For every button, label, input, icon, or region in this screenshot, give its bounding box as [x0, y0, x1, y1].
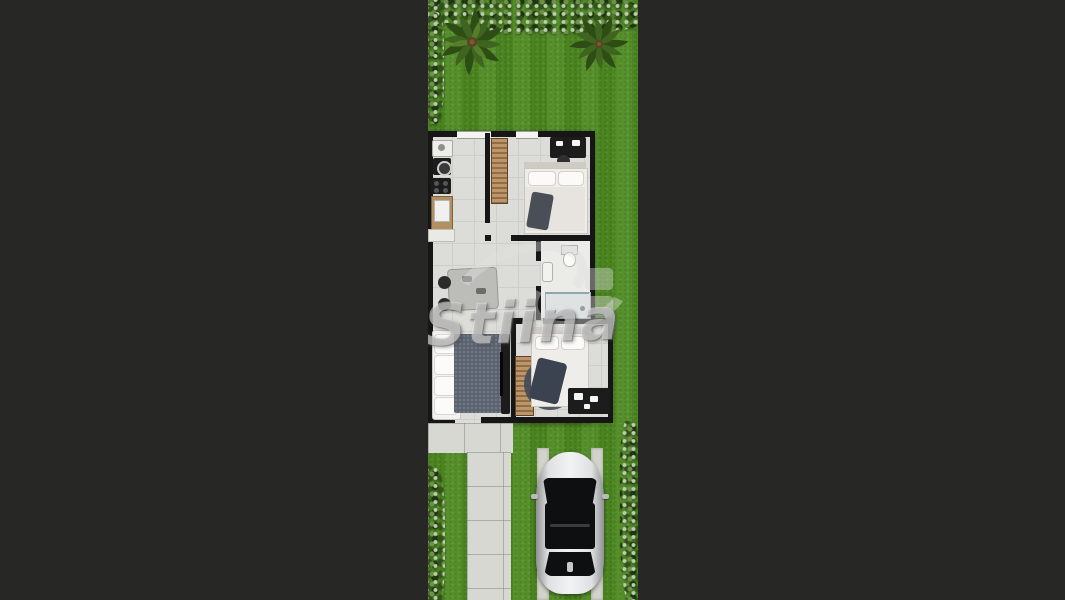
- washing-machine-door: [437, 161, 452, 176]
- bathroom-sink: [542, 262, 553, 282]
- burner-2: [443, 181, 448, 186]
- kitchen-sink-basin: [438, 144, 445, 151]
- dining-chair-1: [438, 276, 451, 289]
- right-hedge-lower-bush: [620, 421, 638, 600]
- shower: [545, 292, 591, 319]
- dining-table: [447, 267, 499, 312]
- palm-tree-left-icon: [434, 6, 510, 78]
- front-walkway: [467, 452, 511, 600]
- desk-2-paper-2: [590, 396, 598, 402]
- patio-slab: [428, 423, 513, 453]
- bed-1-pillow-left: [528, 171, 556, 186]
- bed-2-pillow-right: [561, 336, 585, 350]
- wardrobe-bedroom-1: [491, 138, 508, 204]
- living-rug: [454, 334, 502, 413]
- burner-3: [434, 188, 439, 193]
- desk-bedroom-1: [550, 137, 586, 158]
- left-matte: [0, 0, 428, 600]
- bedroom-1-window: [516, 131, 538, 139]
- car-windshield: [543, 478, 597, 504]
- tv-screen: [500, 352, 503, 396]
- left-hedge-lower-bush: [428, 466, 445, 600]
- car-roof-line: [550, 524, 590, 527]
- kitchen-cabinet: [428, 229, 455, 242]
- palm-tree-right-icon: [564, 12, 634, 76]
- right-matte: [638, 0, 1065, 600]
- wall-kitchen-bedroom1: [485, 133, 490, 223]
- bed-1-pillow-right: [558, 171, 584, 186]
- car-mirror-left: [531, 494, 538, 499]
- desk-2-paper-1: [574, 393, 583, 400]
- dining-chair-2: [438, 298, 451, 311]
- burner-4: [443, 188, 448, 193]
- car-emblem: [567, 562, 573, 572]
- floor-plan-image: Stiina: [0, 0, 1065, 600]
- desk-bedroom-2: [568, 388, 610, 414]
- table-setting-1: [462, 276, 472, 282]
- wall-bedroom1-bottom-a: [485, 235, 491, 241]
- burner-1: [434, 181, 439, 186]
- wall-bottom-b: [481, 417, 613, 423]
- desk-2-paper-3: [584, 404, 590, 409]
- shower-glass: [545, 292, 589, 294]
- table-setting-2: [476, 288, 486, 294]
- grass-lot: Stiina: [428, 0, 638, 600]
- fridge: [434, 200, 450, 222]
- car-mirror-right: [602, 494, 609, 499]
- desk-1-laptop: [572, 140, 580, 146]
- bed-2-pillow-left: [535, 336, 559, 350]
- shower-drain: [580, 306, 585, 311]
- toilet-bowl: [563, 252, 576, 267]
- desk-1-paper: [556, 141, 563, 146]
